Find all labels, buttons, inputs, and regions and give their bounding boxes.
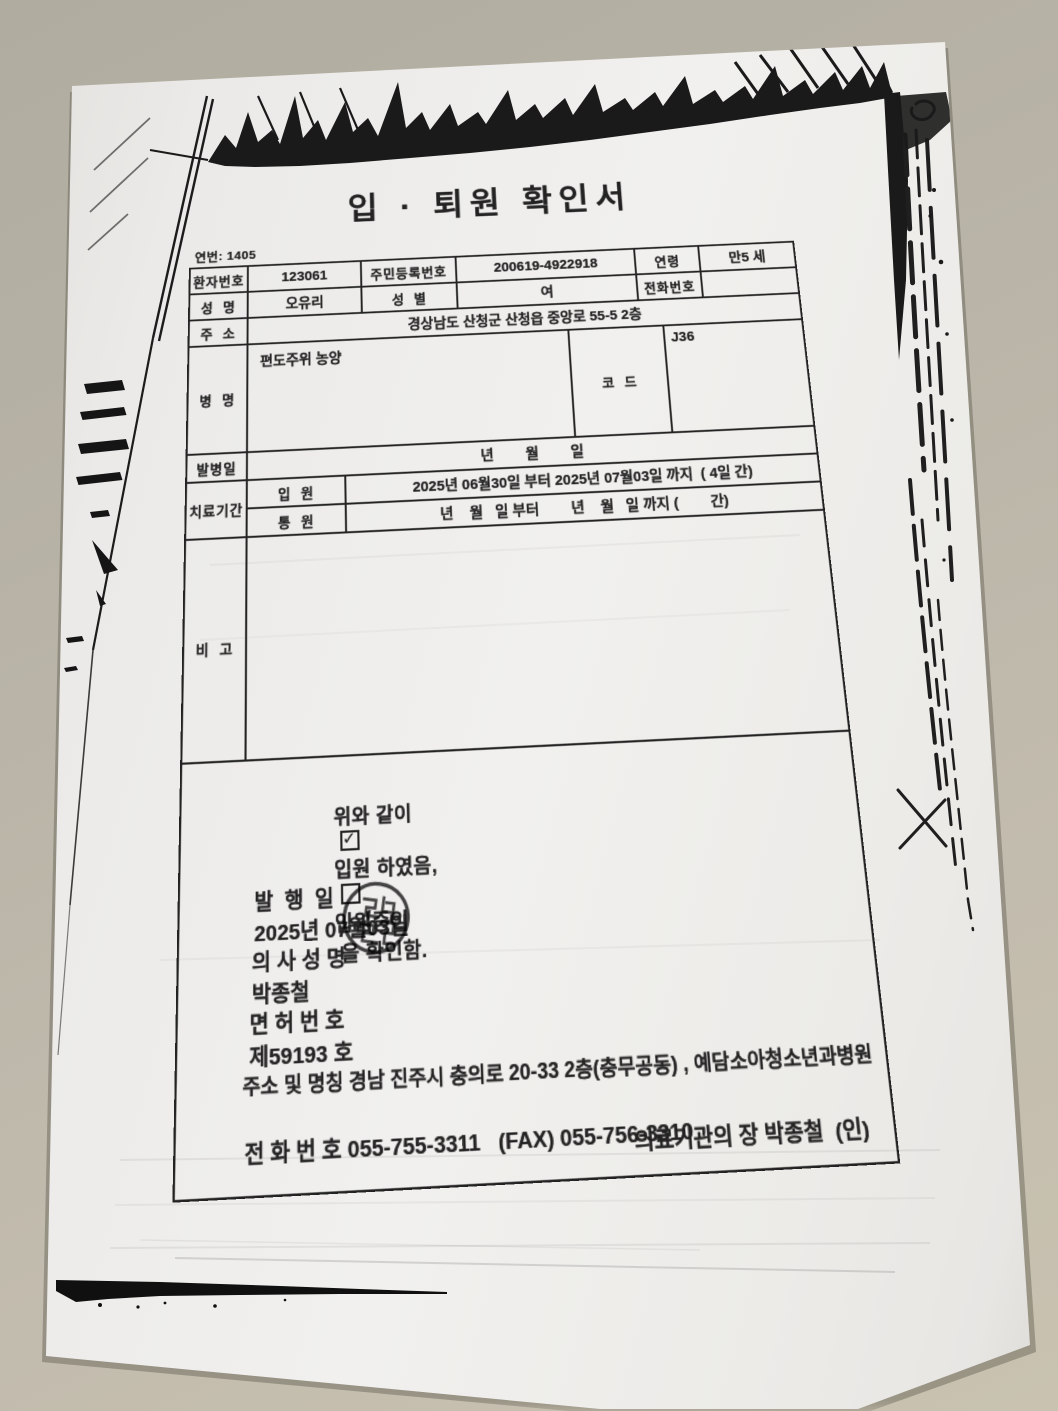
patient-info-table: 환자번호 123061 주민등록번호 200619-4922918 연령 만5 … [180,241,850,765]
sex-label: 성 별 [360,283,456,312]
right-woodgrain-band [898,101,973,930]
table-row-note: 비 고 [182,509,848,763]
note-value [244,511,848,760]
patient-no-label: 환자번호 [190,267,247,294]
checkmark-icon: ✓ [342,828,356,849]
resident-no-label: 주민등록번호 [360,258,456,286]
disease-label: 병 명 [188,345,247,454]
clinic-phone-label: 전 화 번 호 [244,1138,341,1170]
address-label: 주 소 [190,319,247,346]
age-value: 만5 세 [697,243,795,271]
name-value: 오유리 [247,288,361,317]
desk-surface: 입 · 퇴원 확인서 연번: 1405 환자번호 123061 주민등록번호 2… [0,0,1058,1411]
checkbox-admitted-checked: ✓ [340,830,360,851]
disease-value: 편도주위 농양 [246,331,574,452]
doctor-name-label: 의 사 성 명 [252,947,346,977]
doctor-seal-stamp [336,876,417,960]
confirmation-lead: 위와 같이 [333,803,412,829]
clinic-address-value: 경남 진주시 충의로 20-33 2층(충무공동) , 예담소아청소년과병원 [349,1042,874,1094]
patient-no-value: 123061 [247,262,361,291]
code-value: J36 [662,320,813,431]
admission-discharge-form: 입 · 퇴원 확인서 연번: 1405 환자번호 123061 주민등록번호 2… [173,159,896,1163]
certification-section: 위와 같이 ✓ 입원 하였음, 입원중임 을 확인함. 발 행 일 2025년 … [172,732,900,1203]
clinic-address-label: 주소 및 명칭 [242,1069,343,1099]
period-label: 치료기간 [186,481,246,539]
phone-value [700,268,798,296]
outpatient-label: 통 원 [248,505,346,536]
paper-sheet: 입 · 퇴원 확인서 연번: 1405 환자번호 123061 주민등록번호 2… [0,0,1058,1411]
bottom-ink-smudge [56,1240,895,1309]
age-label: 연령 [633,247,699,274]
note-label: 비 고 [182,538,245,762]
issue-date-label: 발 행 일 [254,888,334,916]
onset-label: 발병일 [187,453,246,482]
name-label: 성 명 [190,293,247,320]
license-number-label: 면 허 번 호 [249,1009,344,1039]
phone-label: 전화번호 [635,272,702,299]
code-label: 코 드 [567,326,671,436]
